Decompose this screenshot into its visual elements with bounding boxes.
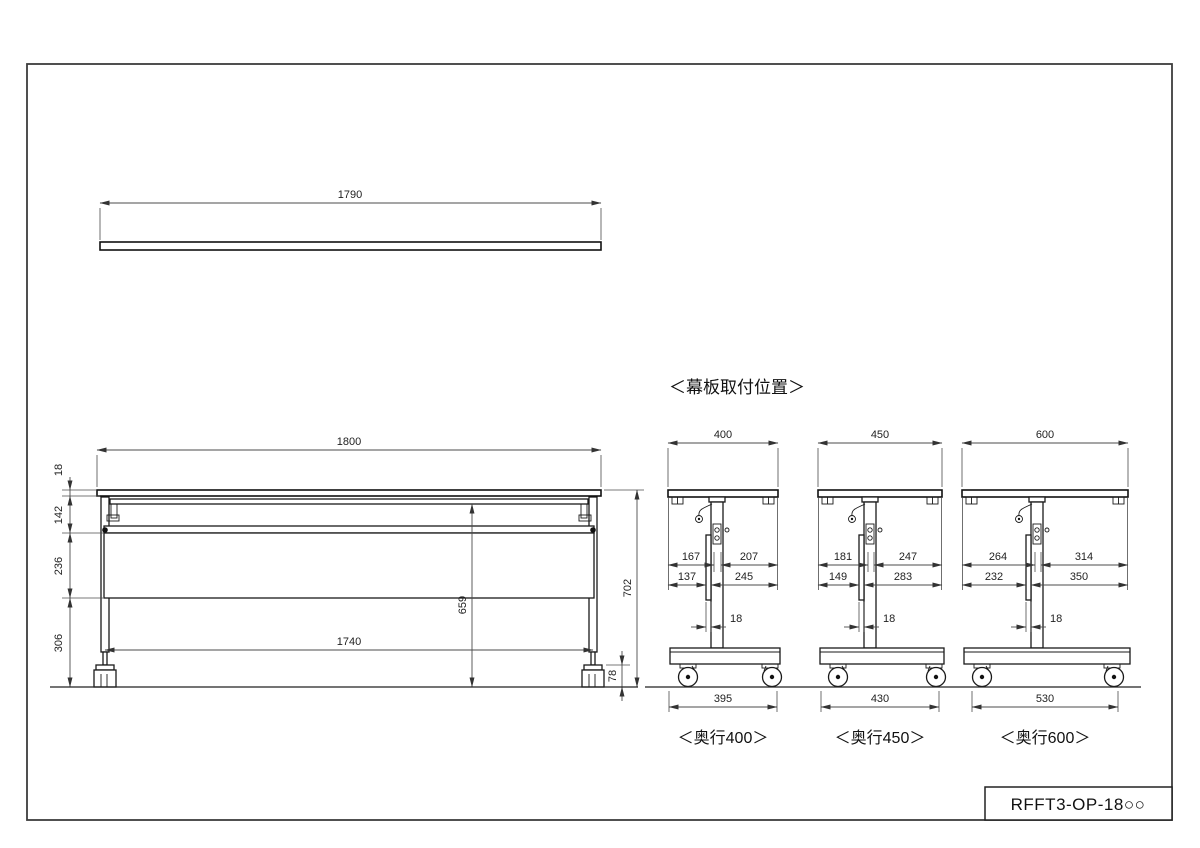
dim-overall-height: 702 xyxy=(622,579,634,597)
modesty-panel xyxy=(104,533,594,598)
tabletop-side xyxy=(818,490,942,497)
top-frame-rail xyxy=(110,499,588,504)
dim-panel-thickness: 18 xyxy=(883,613,895,625)
dim-upper-front: 264 xyxy=(989,551,1007,563)
latch-knob xyxy=(878,528,882,532)
side-view-label: ＜奥行450＞ xyxy=(835,729,926,747)
dim-panel-thickness: 18 xyxy=(730,613,742,625)
part-number: RFFT3-OP-18○○ xyxy=(1011,795,1146,814)
dim-front-width: 1800 xyxy=(337,436,361,448)
dim-upper-rear: 314 xyxy=(1075,551,1093,563)
dim-lower-rear: 283 xyxy=(894,571,912,583)
right-caster-wheel xyxy=(582,670,604,687)
caster-axle xyxy=(980,675,984,679)
tabletop-front xyxy=(97,490,601,496)
caster-axle xyxy=(686,675,690,679)
section-label: ＜幕板取付位置＞ xyxy=(669,378,805,397)
dim-lower-front: 137 xyxy=(678,571,696,583)
title-block: RFFT3-OP-18○○ xyxy=(985,787,1172,820)
column-cap xyxy=(1029,497,1045,502)
dim-depth: 400 xyxy=(714,429,732,441)
dim-caster-span: 395 xyxy=(714,693,732,705)
dim-caster-span: 530 xyxy=(1036,693,1054,705)
dim-underside-height: 659 xyxy=(457,596,469,614)
drawing-canvas: 1790 xyxy=(0,0,1200,848)
right-leg-stem xyxy=(591,652,595,665)
dim-upper-rear: 207 xyxy=(740,551,758,563)
lower-frame-rail xyxy=(104,526,594,533)
caster-axle xyxy=(836,675,840,679)
dim-upper-rear: 247 xyxy=(899,551,917,563)
dim-panel-thickness: 18 xyxy=(1050,613,1062,625)
base-beam xyxy=(964,648,1130,664)
dim-lower-rear: 245 xyxy=(735,571,753,583)
dim-panel-height: 236 xyxy=(53,557,65,575)
left-leg-stem xyxy=(103,652,107,665)
dim-lower-rear: 350 xyxy=(1070,571,1088,583)
latch-knob xyxy=(1045,528,1049,532)
dim-upper-front: 181 xyxy=(834,551,852,563)
right-caster-mount xyxy=(584,665,602,670)
column-cap xyxy=(862,497,878,502)
dim-leg-span: 1740 xyxy=(337,636,361,648)
latch-knob xyxy=(725,528,729,532)
side-view-600: 600 264 314 232 350 18 xyxy=(962,429,1130,747)
right-pivot xyxy=(590,527,596,533)
side-view-400: 400 167 207 137 245 18 xyxy=(668,429,782,747)
release-wire xyxy=(699,504,712,516)
release-lever-dot xyxy=(1018,518,1020,520)
panel-edge xyxy=(706,535,711,600)
column-cap xyxy=(709,497,725,502)
side-view-label: ＜奥行400＞ xyxy=(678,729,769,747)
right-hinge-bracket xyxy=(581,504,587,518)
dim-depth: 600 xyxy=(1036,429,1054,441)
caster-axle xyxy=(1112,675,1116,679)
dim-lower-height: 306 xyxy=(53,634,65,652)
dim-top-view-width: 1790 xyxy=(338,189,362,201)
side-view-450: 450 181 247 149 283 18 xyxy=(818,429,946,747)
dim-upper-front: 167 xyxy=(682,551,700,563)
release-wire xyxy=(852,504,865,516)
release-wire xyxy=(1019,504,1032,516)
left-pivot xyxy=(102,527,108,533)
base-beam xyxy=(820,648,944,664)
panel-edge xyxy=(859,535,864,600)
left-caster-wheel xyxy=(94,670,116,687)
top-view: 1790 xyxy=(100,189,601,250)
dim-lower-front: 232 xyxy=(985,571,1003,583)
caster-axle xyxy=(934,675,938,679)
release-lever-dot xyxy=(698,518,700,520)
dim-frame-height: 142 xyxy=(53,506,65,524)
tabletop-side xyxy=(668,490,778,497)
dim-depth: 450 xyxy=(871,429,889,441)
dim-lower-front: 149 xyxy=(829,571,847,583)
panel-edge xyxy=(1026,535,1031,600)
front-view xyxy=(94,490,604,687)
side-view-label: ＜奥行600＞ xyxy=(1000,729,1091,747)
release-lever-dot xyxy=(851,518,853,520)
caster-axle xyxy=(770,675,774,679)
dim-top-thickness: 18 xyxy=(53,464,65,476)
dim-caster-height: 78 xyxy=(607,670,619,682)
dim-caster-span: 430 xyxy=(871,693,889,705)
tabletop-plan xyxy=(100,242,601,250)
tabletop-side xyxy=(962,490,1128,497)
base-beam xyxy=(670,648,780,664)
left-hinge-bracket xyxy=(111,504,117,518)
left-caster-mount xyxy=(96,665,114,670)
technical-drawing-page: 1790 xyxy=(0,0,1200,848)
